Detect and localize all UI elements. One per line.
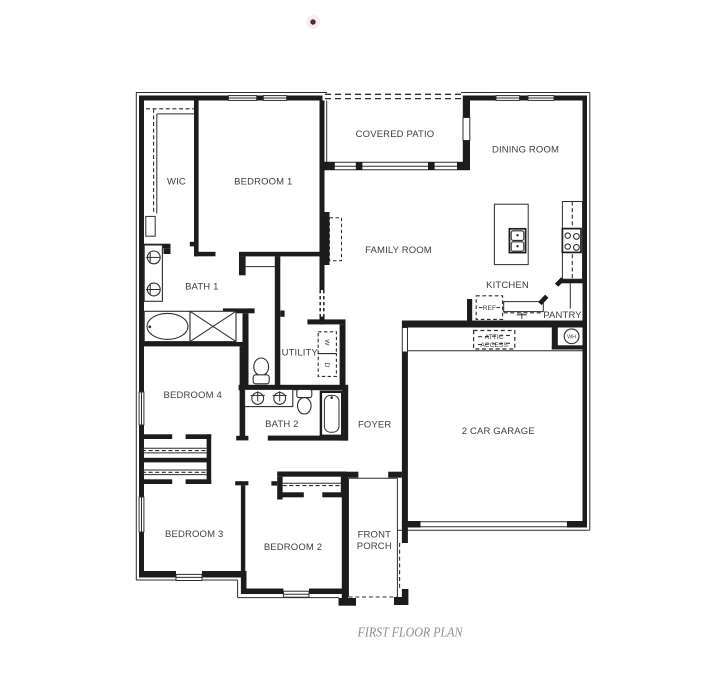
svg-text:BEDROOM 4: BEDROOM 4 (164, 390, 222, 401)
svg-text:W: W (323, 339, 330, 346)
svg-text:ACCESS: ACCESS (480, 342, 508, 349)
svg-text:FIRST FLOOR PLAN: FIRST FLOOR PLAN (357, 624, 464, 639)
svg-text:COVERED PATIO: COVERED PATIO (356, 129, 435, 140)
svg-text:FRONT: FRONT (358, 529, 392, 540)
svg-text:UTILITY: UTILITY (282, 348, 319, 359)
svg-text:2 CAR GARAGE: 2 CAR GARAGE (462, 426, 535, 437)
svg-text:BATH 2: BATH 2 (265, 419, 298, 430)
svg-text:FAMILY ROOM: FAMILY ROOM (365, 245, 432, 256)
svg-text:BEDROOM 3: BEDROOM 3 (165, 529, 223, 540)
svg-text:D: D (323, 363, 330, 368)
svg-text:KITCHEN: KITCHEN (486, 280, 529, 291)
svg-text:WIC: WIC (167, 176, 186, 187)
svg-text:WH: WH (567, 335, 576, 341)
svg-text:BATH 1: BATH 1 (185, 282, 218, 293)
svg-text:REF: REF (483, 305, 497, 312)
svg-text:BEDROOM 1: BEDROOM 1 (234, 176, 292, 187)
svg-text:FOYER: FOYER (358, 419, 391, 430)
svg-text:PORCH: PORCH (357, 541, 392, 552)
svg-text:DINING ROOM: DINING ROOM (492, 144, 559, 155)
svg-text:BEDROOM 2: BEDROOM 2 (264, 542, 322, 553)
svg-text:PANTRY: PANTRY (543, 310, 582, 321)
